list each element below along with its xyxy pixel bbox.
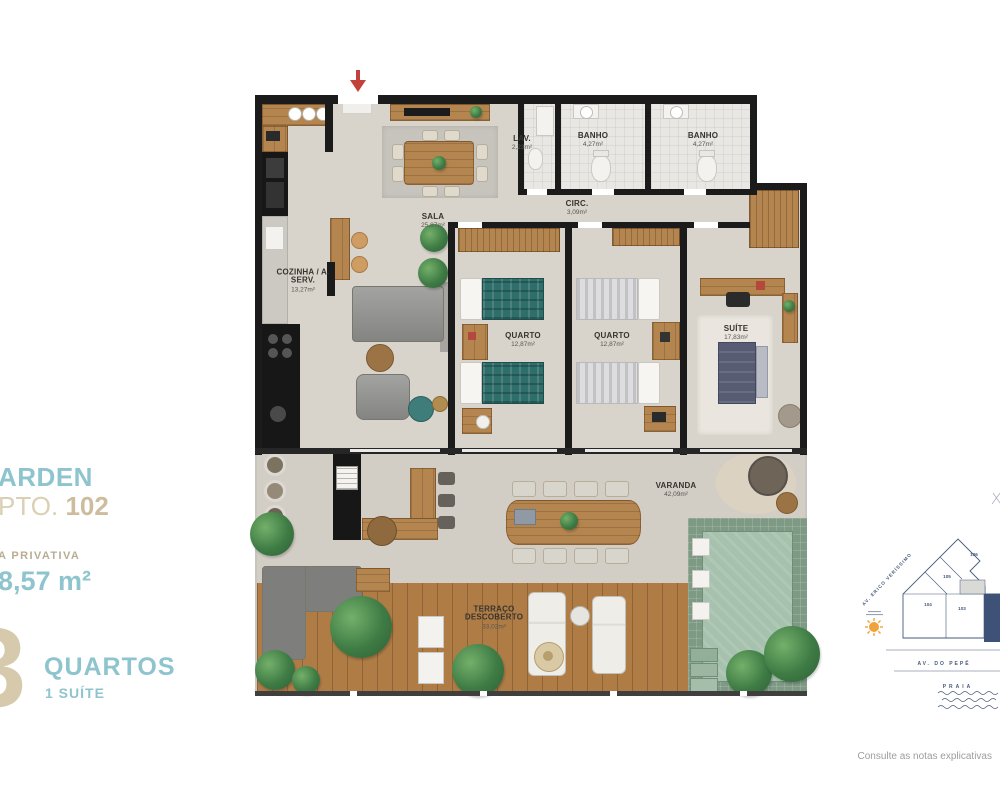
arrow-head <box>350 80 366 92</box>
laptop <box>652 412 666 422</box>
bar-stool <box>351 232 368 249</box>
street-horizontal-label: AV. DO PEPÊ <box>917 659 970 667</box>
suite-pouf <box>778 404 802 428</box>
wardrobe <box>458 228 560 252</box>
building-core <box>960 580 985 594</box>
wall <box>518 189 757 195</box>
bar-stool <box>438 472 455 485</box>
table-centerpiece <box>432 156 446 170</box>
wall <box>518 103 524 195</box>
sofa <box>352 286 444 342</box>
wall <box>800 183 807 455</box>
unit-104-label: 104 <box>924 602 932 607</box>
wall <box>448 222 455 455</box>
armchair <box>356 374 410 420</box>
varanda-chair <box>605 548 629 564</box>
plant <box>764 626 820 682</box>
console-plant <box>470 106 482 118</box>
highlighted-unit <box>984 594 1000 642</box>
unit-106-label: 106 <box>970 552 978 557</box>
door-opening <box>578 222 602 228</box>
bed <box>576 362 638 404</box>
round-side-table <box>570 606 590 626</box>
suite-wardrobe <box>749 190 799 248</box>
door-opening <box>592 189 614 195</box>
wall-decor-plate <box>264 454 286 476</box>
railing-gap <box>740 691 747 696</box>
wall <box>565 222 572 455</box>
varanda-chair <box>574 548 598 564</box>
varanda-chair <box>574 481 598 497</box>
varanda-chair <box>543 548 567 564</box>
cooktop-burner <box>282 334 292 344</box>
bed <box>482 362 544 404</box>
plant <box>330 596 392 658</box>
grill-counter <box>333 448 361 540</box>
bar-stool <box>438 516 455 529</box>
footer-note: Consulte as notas explicativas <box>857 751 992 762</box>
banho-basin <box>670 106 683 119</box>
plant <box>250 512 294 556</box>
desk-lamp <box>468 332 476 340</box>
toilet-tank <box>699 150 715 157</box>
plant <box>418 258 448 288</box>
cooktop-burner <box>268 348 278 358</box>
railing-gap <box>350 691 357 696</box>
pool-planter <box>692 570 710 588</box>
dining-chair <box>422 130 438 141</box>
dining-chair <box>444 186 460 197</box>
suite-bed-pillows <box>756 346 768 398</box>
sun-icon <box>865 618 883 636</box>
unit-line: PTO. 102 <box>0 491 109 522</box>
bed-pillow <box>638 278 660 320</box>
kitchen-sink-round <box>270 406 286 422</box>
plant <box>255 650 295 690</box>
entrance-opening <box>338 95 378 104</box>
wall <box>378 95 757 104</box>
bed <box>576 278 638 320</box>
terrace-glass-left <box>255 451 257 695</box>
coffee-table <box>366 344 394 372</box>
beach-label: PRAIA <box>943 684 974 690</box>
railing-gap <box>480 691 487 696</box>
bar-stool <box>438 494 455 507</box>
unit-prefix: PTO. <box>0 491 58 521</box>
sun-hat-crown <box>543 651 553 661</box>
wall <box>680 222 687 455</box>
varanda-chair <box>512 548 536 564</box>
cooktop-burner <box>282 348 292 358</box>
floor-lamp <box>432 396 448 412</box>
sliding-door-glass <box>462 449 557 452</box>
varanda-chair <box>512 481 536 497</box>
unit-number: 102 <box>65 491 108 521</box>
pool-planter <box>692 538 710 556</box>
dining-chair <box>392 144 404 160</box>
pool-planter <box>692 602 710 620</box>
kitchen-stove-counter <box>262 324 300 448</box>
private-area-value: 8,57 m² <box>0 566 91 597</box>
table-tray <box>514 509 536 525</box>
bedrooms-label: QUARTOS <box>44 653 176 682</box>
sliding-door-glass <box>350 449 440 452</box>
suite-desk-chair <box>726 292 750 307</box>
banho-basin <box>580 106 593 119</box>
desk-item <box>660 332 670 342</box>
unit-103-label: 103 <box>958 606 966 611</box>
dining-chair <box>476 144 488 160</box>
fridge-door <box>266 158 284 178</box>
sun-lounger <box>592 596 626 674</box>
sliding-door-glass <box>585 449 673 452</box>
side-table <box>776 492 798 514</box>
desk <box>462 324 488 360</box>
pool-step <box>690 663 718 677</box>
wall <box>750 183 807 190</box>
kitchen-sink <box>265 226 284 250</box>
sliding-door-glass <box>700 449 792 452</box>
suite-label: 1 SUÍTE <box>45 685 105 701</box>
bar-stool <box>351 256 368 273</box>
desk-chair <box>476 415 490 429</box>
unit-105-label: 105 <box>943 574 951 579</box>
bed <box>482 278 544 320</box>
round-table <box>367 516 397 546</box>
banho-toilet <box>697 155 717 182</box>
compass-remnant-icon <box>992 493 1000 504</box>
varanda-centerpiece <box>560 512 578 530</box>
wall <box>255 95 262 455</box>
fridge-door <box>266 182 284 208</box>
door-opening <box>694 222 718 228</box>
waves-icon <box>938 692 998 709</box>
deck-cushion <box>418 652 444 684</box>
wall-decor-plate <box>264 480 286 502</box>
suite-desk-item <box>756 281 765 290</box>
wall <box>325 100 333 152</box>
toilet-tank <box>593 150 609 157</box>
varanda-chair <box>543 481 567 497</box>
pouf <box>408 396 434 422</box>
tv <box>404 108 450 116</box>
entrance-door <box>342 103 372 114</box>
deck-cushion <box>418 616 444 648</box>
door-opening <box>527 189 547 195</box>
plant <box>420 224 448 252</box>
pool-step <box>690 648 718 662</box>
wall <box>555 103 561 195</box>
wall <box>750 95 757 190</box>
door-opening <box>684 189 706 195</box>
bed-pillow <box>460 362 482 404</box>
private-area-label: A PRIVATIVA <box>0 550 80 562</box>
lav-sink <box>536 106 554 136</box>
varanda-chair <box>605 481 629 497</box>
banho-toilet <box>591 155 611 182</box>
suite-plant <box>783 300 795 312</box>
bed-pillow <box>460 278 482 320</box>
bedrooms-count: 3 <box>0 612 26 724</box>
bed-pillow <box>638 362 660 404</box>
terrace-coffee-table <box>356 568 390 592</box>
hanging-chair <box>748 456 788 496</box>
entrance-arrow-icon <box>350 70 366 94</box>
terrace-sofa <box>262 566 306 660</box>
brochure-page: ARDEN PTO. 102 A PRIVATIVA 8,57 m² 3 QUA… <box>0 0 1000 800</box>
wall <box>645 103 651 195</box>
dining-chair <box>476 166 488 182</box>
cooktop-burner <box>268 334 278 344</box>
wall <box>327 262 335 296</box>
dining-chair <box>392 166 404 182</box>
wardrobe <box>612 228 680 246</box>
kitchen-sink-bowl <box>302 107 316 121</box>
dining-chair <box>444 130 460 141</box>
sun-caption <box>866 614 883 615</box>
sun-caption <box>868 611 881 612</box>
door-opening <box>458 222 482 228</box>
grill <box>336 466 358 490</box>
plant <box>452 644 504 696</box>
railing-gap <box>610 691 617 696</box>
dining-chair <box>422 186 438 197</box>
plant <box>292 666 320 694</box>
kitchen-sink-bowl <box>288 107 302 121</box>
suite-bed <box>718 342 756 404</box>
lav-toilet <box>528 148 543 170</box>
kitchen-appliance <box>266 131 280 141</box>
project-title: ARDEN <box>0 462 93 493</box>
site-map: AV. ERICO VERÍSSIMO 106 105 104 103 AV. <box>846 490 1000 715</box>
terrace-railing <box>255 691 807 696</box>
pool-step <box>690 678 718 692</box>
